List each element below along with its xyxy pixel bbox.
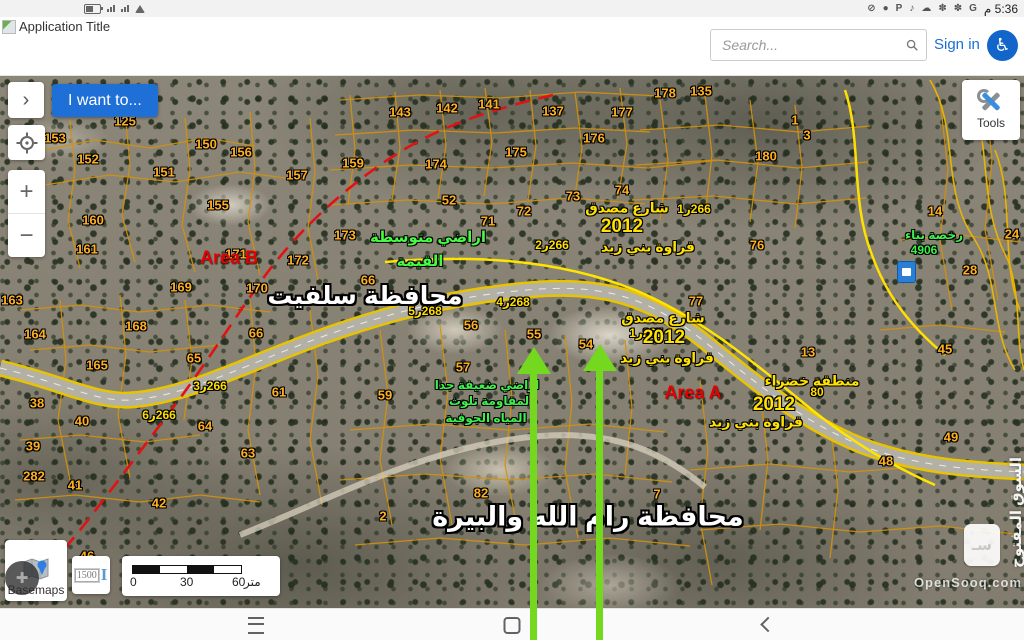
zoom-out-button[interactable]: − [8, 214, 45, 257]
tiktok-icon: ♪ [909, 4, 914, 14]
signal-icon [107, 5, 115, 12]
scale-bar-segments [132, 565, 242, 574]
search-icon[interactable] [906, 35, 918, 55]
pinwheel-icon: ✽ [954, 4, 962, 14]
cloud-upload-icon: ☁ [921, 4, 931, 14]
tools-label: Tools [977, 116, 1005, 130]
scale-tick: 0 [130, 575, 137, 589]
scale-tick: 30 [180, 575, 193, 589]
google-icon: G [969, 4, 977, 14]
zoom-in-button[interactable]: + [8, 170, 45, 214]
scale-value: 1500 [75, 569, 99, 582]
search-input[interactable] [720, 36, 906, 54]
menu-button[interactable] [248, 617, 264, 634]
pinwheel-icon: ✽ [938, 4, 946, 14]
status-bar: ⊘●P♪☁✽✽G م 5:36 [0, 0, 1024, 17]
accessibility-icon: ♿ [994, 35, 1010, 56]
text-cursor-icon: I [101, 565, 108, 585]
search-box[interactable] [710, 29, 927, 61]
assistive-touch-button[interactable]: ✚ [5, 561, 39, 595]
chevron-right-icon: › [23, 89, 30, 112]
minus-icon: − [19, 222, 33, 250]
status-right-icons: ⊘●P♪☁✽✽G م 5:36 [867, 2, 1018, 16]
building-permit-icon[interactable] [897, 261, 916, 283]
clock: م 5:36 [984, 2, 1018, 16]
locate-button[interactable] [8, 125, 45, 160]
watermark-arabic: السوق المفتوح [1008, 457, 1024, 568]
android-nav-bar [0, 608, 1024, 640]
zoom-controls: + − [8, 170, 45, 257]
scale-bar-labels: 0 30 60 متر [132, 574, 272, 588]
scale-unit: متر [244, 575, 261, 589]
app-title: Application Title [19, 19, 110, 34]
watermark-latin: OpenSooq.com [914, 575, 1022, 590]
parking-icon: P [896, 4, 903, 14]
signal-icon [121, 5, 129, 12]
i-want-to-button[interactable]: I want to... [52, 84, 158, 117]
app-title-row: Application Title [2, 19, 110, 34]
map-canvas[interactable] [0, 75, 1024, 608]
map-scale-widget[interactable]: 1500 I [72, 556, 110, 594]
accessibility-button[interactable]: ♿ [987, 30, 1018, 61]
opensooq-logo: سـ [964, 524, 1000, 566]
broken-image-icon [2, 20, 16, 34]
crosshair-icon [16, 132, 38, 154]
back-button[interactable] [760, 617, 776, 633]
panel-toggle-button[interactable]: › [8, 82, 44, 118]
app-header: Application Title Sign in ♿ [0, 17, 1024, 76]
notifications-muted-icon: ⊘ [867, 4, 875, 14]
battery-icon [84, 4, 101, 14]
sign-in-link[interactable]: Sign in [934, 36, 980, 53]
chat-icon: ● [883, 4, 889, 14]
tools-button[interactable]: Tools [962, 80, 1020, 140]
tools-icon [979, 91, 1003, 113]
scale-bar: 0 30 60 متر [122, 556, 280, 596]
home-button[interactable] [504, 617, 521, 634]
plus-icon: + [19, 178, 33, 206]
assist-icon: ✚ [16, 569, 29, 587]
wifi-icon [135, 5, 145, 13]
status-left-icons [84, 4, 145, 14]
